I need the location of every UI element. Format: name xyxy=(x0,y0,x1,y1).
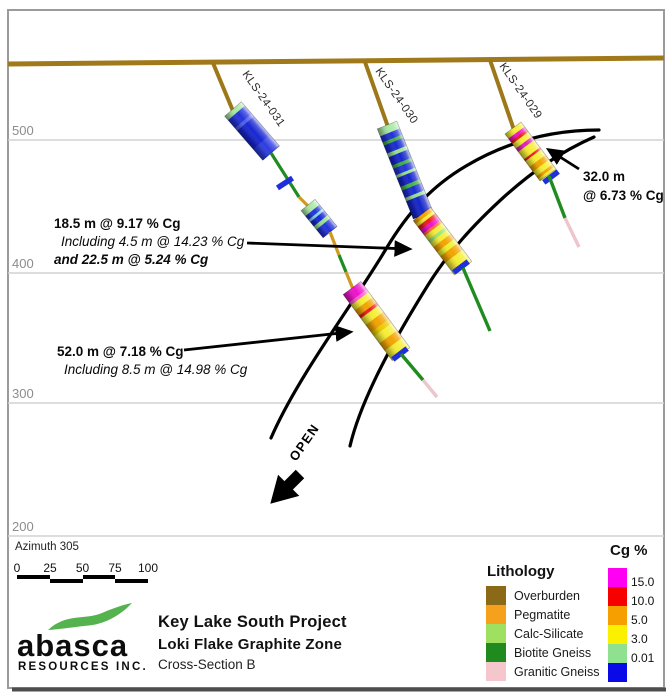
assay-annotation: 52.0 m @ 7.18 % CgIncluding 8.5 m @ 14.9… xyxy=(57,344,248,377)
elevation-label-500: 500 xyxy=(12,123,34,138)
interval-cylinder xyxy=(343,281,410,360)
assay-annotation-line: 52.0 m @ 7.18 % Cg xyxy=(57,344,183,359)
surface-line xyxy=(8,58,664,64)
lithology-swatch-calc-silicate xyxy=(486,624,506,643)
assay-annotation-line: @ 6.73 % Cg xyxy=(583,188,664,203)
cg-scale-segment xyxy=(608,663,627,682)
drillhole-trace-segment xyxy=(339,255,346,272)
open-label: OPEN xyxy=(286,421,322,464)
lithology-label: Calc-Silicate xyxy=(514,627,583,641)
lithology-legend-row: Calc-Silicate xyxy=(486,624,606,643)
cg-scale-segment xyxy=(608,568,627,587)
assay-annotation: 32.0 m@ 6.73 % Cg xyxy=(583,169,664,203)
annotation-arrow xyxy=(247,243,409,249)
lithology-label: Biotite Gneiss xyxy=(514,646,591,660)
drillhole-trace-segment xyxy=(423,380,437,397)
drillhole-trace-segment xyxy=(330,232,339,255)
drillhole-trace-segment xyxy=(401,354,423,380)
cg-scale-segment xyxy=(608,625,627,644)
lithology-swatch-pegmatite xyxy=(486,605,506,624)
cg-scale-labels: 15.010.05.03.00.01 xyxy=(631,568,667,682)
drillhole-trace-segment xyxy=(213,63,233,111)
lithology-swatch-biotite-gneiss xyxy=(486,643,506,662)
interval-cylinder xyxy=(505,122,556,181)
drillhole-trace-segment xyxy=(299,197,308,206)
cg-scale-label: 10.0 xyxy=(631,594,654,608)
interval-cylinder xyxy=(377,121,433,219)
azimuth-label: Azimuth 305 xyxy=(15,541,79,553)
cross-section-figure: 500400300200KLS-24-031KLS-24-030KLS-24-0… xyxy=(0,0,672,697)
lithology-legend-row: Granitic Gneiss xyxy=(486,662,606,681)
drillhole-KLS-24-029: KLS-24-029 xyxy=(490,60,579,247)
drillhole-trace-segment xyxy=(549,176,565,218)
drillhole-trace-segment xyxy=(346,272,353,289)
cg-legend-title: Cg % xyxy=(610,542,648,559)
drillhole-trace-segment xyxy=(565,218,579,247)
assay-annotation-line: 32.0 m xyxy=(583,169,625,184)
assay-annotation-line: Including 8.5 m @ 14.98 % Cg xyxy=(64,362,248,377)
open-direction-arrow xyxy=(260,463,311,514)
cg-color-scale xyxy=(608,568,627,682)
cg-scale-label: 15.0 xyxy=(631,575,654,589)
assay-annotation-line: and 22.5 m @ 5.24 % Cg xyxy=(54,252,209,267)
lithology-label: Overburden xyxy=(514,589,580,603)
project-title: Key Lake South Project xyxy=(158,613,347,632)
lithology-label: Granitic Gneiss xyxy=(514,665,599,679)
lithology-legend-title: Lithology xyxy=(487,563,555,580)
lithology-label: Pegmatite xyxy=(514,608,570,622)
elevation-label-200: 200 xyxy=(12,519,34,534)
lithology-legend-row: Biotite Gneiss xyxy=(486,643,606,662)
lithology-legend: OverburdenPegmatiteCalc-SilicateBiotite … xyxy=(486,586,606,682)
cg-scale-segment xyxy=(608,587,627,606)
cg-scale-label: 5.0 xyxy=(631,613,648,627)
lithology-legend-row: Pegmatite xyxy=(486,605,606,624)
drillhole-trace-segment xyxy=(271,153,299,197)
assay-annotation: 18.5 m @ 9.17 % CgIncluding 4.5 m @ 14.2… xyxy=(54,216,245,267)
drillhole-trace-segment xyxy=(463,268,490,331)
elevation-label-400: 400 xyxy=(12,256,34,271)
cg-scale-label: 0.01 xyxy=(631,651,654,665)
elevation-label-300: 300 xyxy=(12,386,34,401)
cg-scale-segment xyxy=(608,606,627,625)
lithology-swatch-granitic-gneiss xyxy=(486,662,506,681)
section-title: Cross-Section B xyxy=(158,657,256,672)
lithology-swatch-overburden xyxy=(486,586,506,605)
lithology-legend-row: Overburden xyxy=(486,586,606,605)
drillhole-label-KLS-24-029: KLS-24-029 xyxy=(497,61,544,121)
logo-subtitle: RESOURCES INC. xyxy=(18,661,148,673)
cg-scale-segment xyxy=(608,644,627,663)
assay-annotation-line: 18.5 m @ 9.17 % Cg xyxy=(54,216,180,231)
cg-scale-label: 3.0 xyxy=(631,632,648,646)
logo-wordmark: abasca xyxy=(17,628,128,664)
zone-title: Loki Flake Graphite Zone xyxy=(158,636,342,653)
assay-annotation-line: Including 4.5 m @ 14.23 % Cg xyxy=(61,234,245,249)
drillhole-label-KLS-24-030: KLS-24-030 xyxy=(373,66,420,126)
